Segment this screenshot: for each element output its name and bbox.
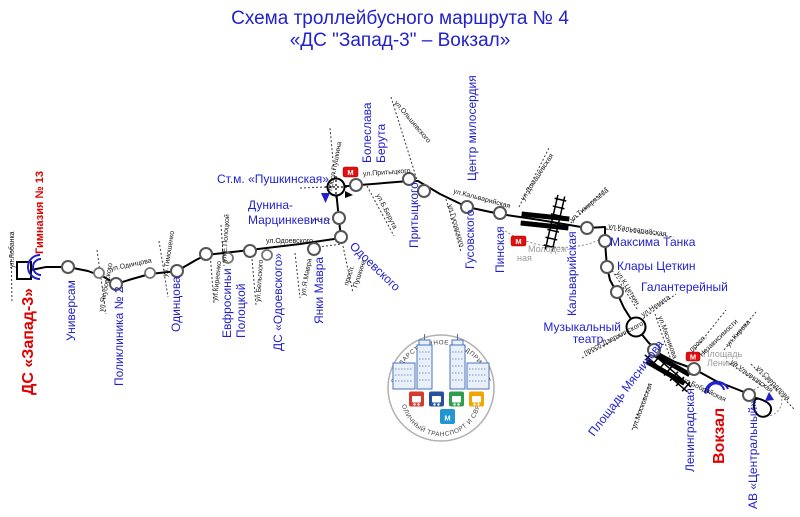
stop-label-pinskaya: Пинская [493, 226, 507, 273]
stop-labels: ДС «Запад-3» Гимназия № 13 Вокзал Универ… [20, 75, 760, 509]
stop-label-galantereyny: Галантерейный [641, 280, 728, 294]
stop-label-pritytskogo: Притыцкого [407, 182, 421, 248]
tram-icon [409, 392, 424, 407]
stop-circle [94, 268, 104, 278]
stop-label-klary-tsetkin: Клары Цеткин [617, 259, 696, 273]
stop-label-dunina-1: Дунина- [248, 198, 293, 212]
page-title: Схема троллейбусного маршрута № 4 [231, 8, 569, 29]
electrobus-icon [449, 392, 464, 407]
street-label-belskogo: ул.Бельского [255, 259, 265, 302]
title-block: Схема троллейбусного маршрута № 4 «ДС "З… [231, 8, 569, 51]
direction-arrow-icon [321, 193, 330, 203]
stop-label-odintsova: Одинцова [169, 276, 183, 332]
street-label-nemiga: ул.Немига [640, 294, 672, 319]
street-label-domashevskaya: ул.Домашевская [520, 153, 556, 203]
stop-circle-odintsova [171, 265, 183, 277]
metro-icon-pushkinskaya: М [343, 167, 358, 177]
metro-m-letter: М [690, 353, 696, 362]
trolleybus-icon [429, 392, 444, 407]
street-label-b-beruta: ул.Б.Берута [374, 193, 398, 231]
street-label-prosp-2b: Пушкина [352, 259, 368, 289]
stop-circle-beruta [350, 179, 362, 191]
street-line-odoevskogo [318, 244, 342, 247]
metro-m-letter: М [515, 237, 521, 246]
metro-m-letter: М [347, 168, 353, 177]
stop-circle [145, 268, 155, 278]
street-label-odoevskogo: ул.Одоевского [266, 238, 313, 245]
stop-label-evfrosini-2: Полоцкой [234, 284, 248, 338]
stop-label-universam: Универсам [64, 280, 78, 341]
stop-label-poliklinika: Поликлиника № 2 [112, 286, 126, 386]
stop-label-av-centralny: АВ «Центральный» [746, 400, 760, 509]
street-label-olshevskogo: ул.Ольшевского [392, 100, 431, 145]
stop-label-dunina-2: Марцинкевича [248, 213, 330, 227]
metro-label-molodezhnaya-2: ная [517, 253, 532, 263]
page-subtitle: «ДС "Запад-3" – Вокзал» [290, 30, 511, 51]
metro-icon-molodezhnaya: М [511, 236, 526, 246]
route-line-west [31, 190, 341, 284]
stop-label-gymnasium: Гимназия № 13 [34, 171, 46, 254]
bus-icon [469, 392, 484, 407]
stop-label-gusovskogo: Гусовского [463, 209, 477, 269]
street-line-ya-mavra [295, 253, 300, 298]
stop-label-beruta-2: Берута [374, 124, 388, 163]
stop-circle-evfrosini [200, 248, 212, 260]
terminal-label-west: ДС «Запад-3» [20, 288, 37, 395]
route-map: Схема троллейбусного маршрута № 4 «ДС "З… [0, 0, 800, 517]
street-label-lobanka: ул.Лобанка [8, 231, 16, 268]
stop-label-yanki-mavra: Янки Мавра [312, 257, 326, 324]
stop-circle-galantereyny [611, 286, 623, 298]
stop-circle-odoevskogo [335, 231, 347, 243]
svg-text:М: М [444, 414, 450, 423]
direction-arrow-icon [345, 191, 353, 198]
stop-label-ds-odoevskogo: ДС «Одоевского» [271, 253, 285, 351]
stop-circle-pinskaya [494, 207, 506, 219]
stop-label-leningradskaya: Ленинградская [683, 388, 697, 472]
stop-circle-av-centralny [743, 389, 755, 401]
stop-label-beruta-1: Болеслава [360, 102, 374, 163]
stop-label-pushkinskaya: Ст.м. «Пушкинская» [217, 172, 329, 186]
stop-label-pl-myasnikova: Площадь Мясникова [585, 337, 666, 439]
metro-label-molodezhnaya: Молодеж- [528, 244, 570, 254]
street-label-moskovskaya: ул.Московская [631, 382, 654, 429]
stop-label-kalvariyskaya: Кальварийская [565, 231, 579, 316]
stop-circle-kalvariyskaya [581, 222, 593, 234]
gymnasium-arc-inner [33, 259, 41, 275]
stop-label-maksima-tanka: Максима Танка [610, 235, 696, 249]
stop-label-evfrosini-1: Евфросиньи [220, 268, 234, 338]
terminal-label-vokzal: Вокзал [711, 408, 728, 464]
stop-circle-ds-odoevskogo [244, 245, 256, 257]
stop-label-centr-miloserdiya: Центр милосердия [465, 75, 479, 181]
stop-circle-dunina [333, 212, 345, 224]
stop-circle-klary-tsetkin [601, 261, 613, 273]
metro-train-icon: М [440, 409, 455, 424]
street-label-timiryazeva: ул.Тимирязева [569, 187, 610, 223]
stop-circle-leningradskaya [688, 363, 700, 375]
stop-circle-universam [62, 261, 74, 273]
route-scheme-page: Схема троллейбусного маршрута № 4 «ДС "З… [0, 0, 800, 517]
street-line-pritytskogo-west [300, 187, 326, 188]
